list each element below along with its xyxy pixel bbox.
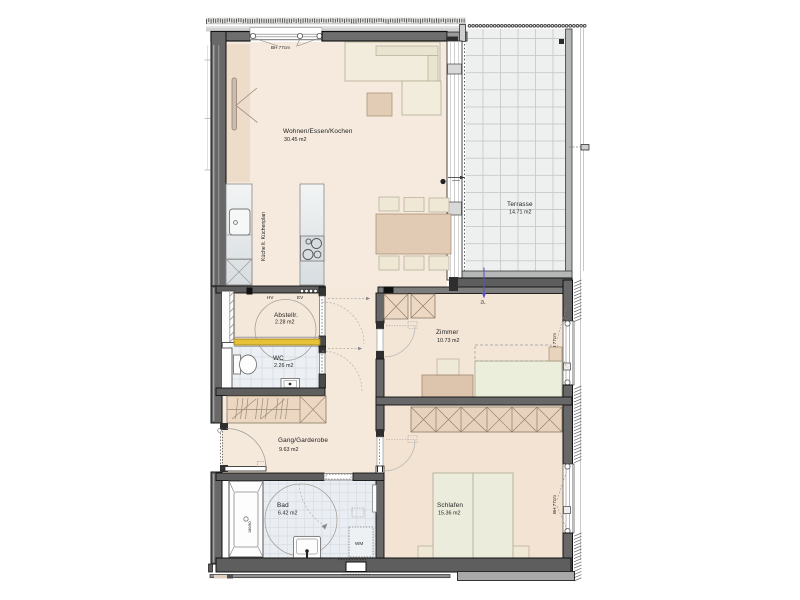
svg-text:14.71 m2: 14.71 m2 xyxy=(509,210,531,216)
svg-text:2.26 m2: 2.26 m2 xyxy=(274,363,293,369)
svg-text:Bad: Bad xyxy=(277,502,289,509)
svg-text:HV: HV xyxy=(267,295,274,300)
svg-text:10.73 m2: 10.73 m2 xyxy=(437,338,459,344)
svg-text:Küche lt. Küchenplan: Küche lt. Küchenplan xyxy=(261,212,267,261)
svg-text:Wohnen/Essen/Kochen: Wohnen/Essen/Kochen xyxy=(283,128,353,135)
svg-text:Abstellr.: Abstellr. xyxy=(274,312,298,319)
svg-text:30.45 m2: 30.45 m2 xyxy=(284,137,306,143)
svg-text:6.42 m2: 6.42 m2 xyxy=(278,511,297,517)
svg-text:EV: EV xyxy=(297,295,304,300)
svg-text:2.28 m2: 2.28 m2 xyxy=(275,320,294,326)
svg-text:WM: WM xyxy=(355,541,363,546)
svg-text:BH 77cm: BH 77cm xyxy=(271,45,290,50)
svg-text:9.63 m2: 9.63 m2 xyxy=(279,447,298,453)
svg-text:180/80: 180/80 xyxy=(248,521,252,533)
svg-text:Zimmer: Zimmer xyxy=(436,329,459,336)
svg-text:15.36 m2: 15.36 m2 xyxy=(438,511,460,517)
svg-text:Terrasse: Terrasse xyxy=(507,201,533,208)
svg-text:Schlafen: Schlafen xyxy=(437,502,463,509)
svg-text:ZL: ZL xyxy=(481,300,487,305)
svg-text:BH 77cm: BH 77cm xyxy=(552,495,557,514)
svg-text:WC: WC xyxy=(273,355,284,362)
svg-text:Gang/Garderobe: Gang/Garderobe xyxy=(278,437,328,444)
